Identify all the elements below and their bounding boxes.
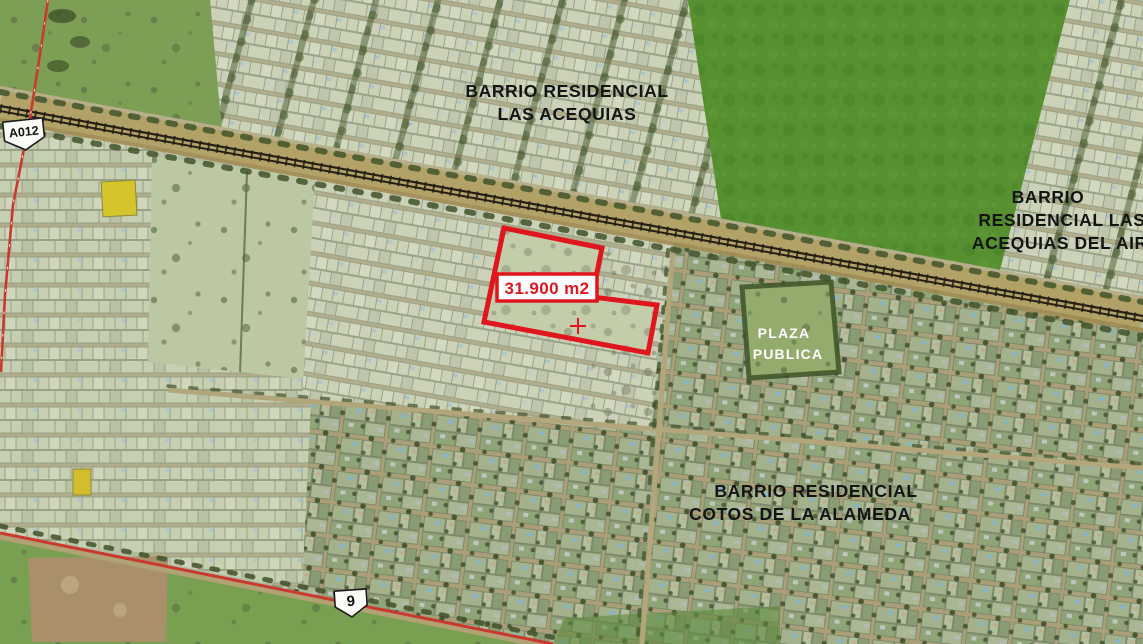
- las-acequias-del-aire-line3: ACEQUIAS DEL AIRE: [972, 233, 1143, 253]
- dirt-mound: [113, 603, 127, 617]
- yellow-lot-large: [101, 180, 137, 217]
- tree-cluster: [47, 60, 69, 72]
- pasture-texture: [148, 156, 322, 380]
- tree-cluster: [70, 36, 90, 48]
- yellow-lot-small: [73, 469, 91, 495]
- cotos-line2: COTOS DE LA ALAMEDA: [689, 504, 911, 524]
- plaza-line2: PUBLICA: [753, 346, 824, 362]
- cotos-line1: BARRIO RESIDENCIAL: [714, 481, 917, 501]
- parcel-area-label: 31.900 m2: [505, 279, 590, 298]
- plaza-line1: PLAZA: [758, 325, 811, 341]
- dirt-mound: [61, 576, 79, 594]
- las-acequias-del-aire-line2: RESIDENCIAL LAS: [978, 210, 1143, 230]
- las-acequias-line1: BARRIO RESIDENCIAL: [465, 81, 668, 101]
- map-canvas: A012 9 31.900 m2 BARRIO RESIDENCIAL LAS: [0, 0, 1143, 644]
- las-acequias-line2: LAS ACEQUIAS: [498, 104, 637, 124]
- las-acequias-del-aire-line1: BARRIO: [1012, 187, 1085, 207]
- aerial-map-screenshot: A012 9 31.900 m2 BARRIO RESIDENCIAL LAS: [0, 0, 1143, 644]
- route-shield-9-label: 9: [346, 593, 356, 611]
- tree-cluster: [48, 9, 76, 23]
